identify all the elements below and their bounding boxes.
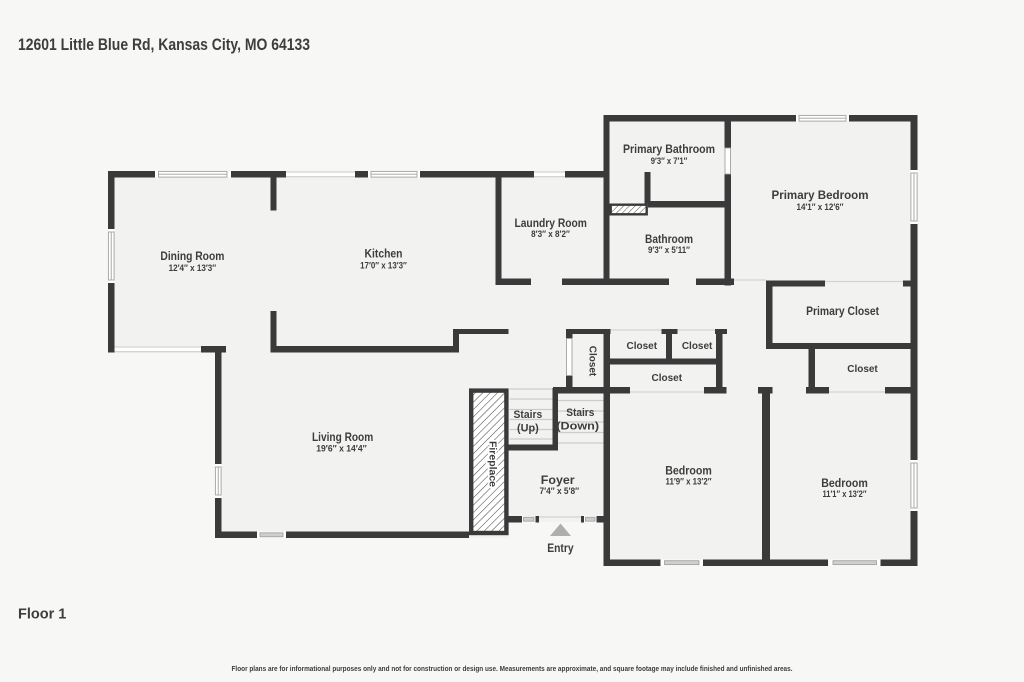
svg-text:Stairs: Stairs [566, 407, 594, 419]
svg-text:Fireplace: Fireplace [487, 441, 499, 487]
svg-text:Primary Bathroom: Primary Bathroom [623, 144, 715, 156]
svg-text:7′4″ x 5′8″: 7′4″ x 5′8″ [540, 486, 580, 496]
svg-text:Closet: Closet [627, 340, 658, 352]
svg-text:(Up): (Up) [517, 423, 539, 435]
svg-text:Entry: Entry [547, 541, 574, 555]
svg-text:Closet: Closet [847, 363, 878, 375]
svg-text:Floor plans are for informatio: Floor plans are for informational purpos… [232, 664, 793, 673]
svg-text:Primary Bedroom: Primary Bedroom [772, 188, 869, 202]
svg-text:12601 Little Blue Rd, Kansas C: 12601 Little Blue Rd, Kansas City, MO 64… [18, 35, 310, 54]
svg-text:14′1″ x 12′6″: 14′1″ x 12′6″ [797, 202, 844, 213]
svg-text:12′4″ x 13′3″: 12′4″ x 13′3″ [169, 263, 217, 274]
svg-text:Floor 1: Floor 1 [18, 607, 66, 623]
svg-text:Closet: Closet [682, 340, 713, 352]
svg-text:Living Room: Living Room [312, 432, 373, 444]
svg-text:11′1″ x 13′2″: 11′1″ x 13′2″ [823, 489, 867, 500]
svg-text:19′6″ x 14′4″: 19′6″ x 14′4″ [316, 444, 367, 455]
svg-text:Stairs: Stairs [514, 409, 543, 421]
svg-text:Primary Closet: Primary Closet [806, 306, 879, 318]
svg-text:17′0″ x 13′3″: 17′0″ x 13′3″ [360, 261, 407, 272]
svg-text:Closet: Closet [587, 346, 599, 377]
svg-text:Closet: Closet [652, 372, 683, 384]
svg-text:8′3″ x 8′2″: 8′3″ x 8′2″ [531, 229, 570, 240]
svg-text:Kitchen: Kitchen [365, 249, 403, 261]
svg-text:(Down): (Down) [556, 420, 599, 432]
svg-text:9′3″ x 5′11″: 9′3″ x 5′11″ [648, 245, 690, 256]
svg-text:11′9″ x 13′2″: 11′9″ x 13′2″ [666, 477, 712, 488]
svg-text:9′3″ x 7′1″: 9′3″ x 7′1″ [651, 156, 688, 167]
svg-text:Dining Room: Dining Room [160, 251, 224, 263]
